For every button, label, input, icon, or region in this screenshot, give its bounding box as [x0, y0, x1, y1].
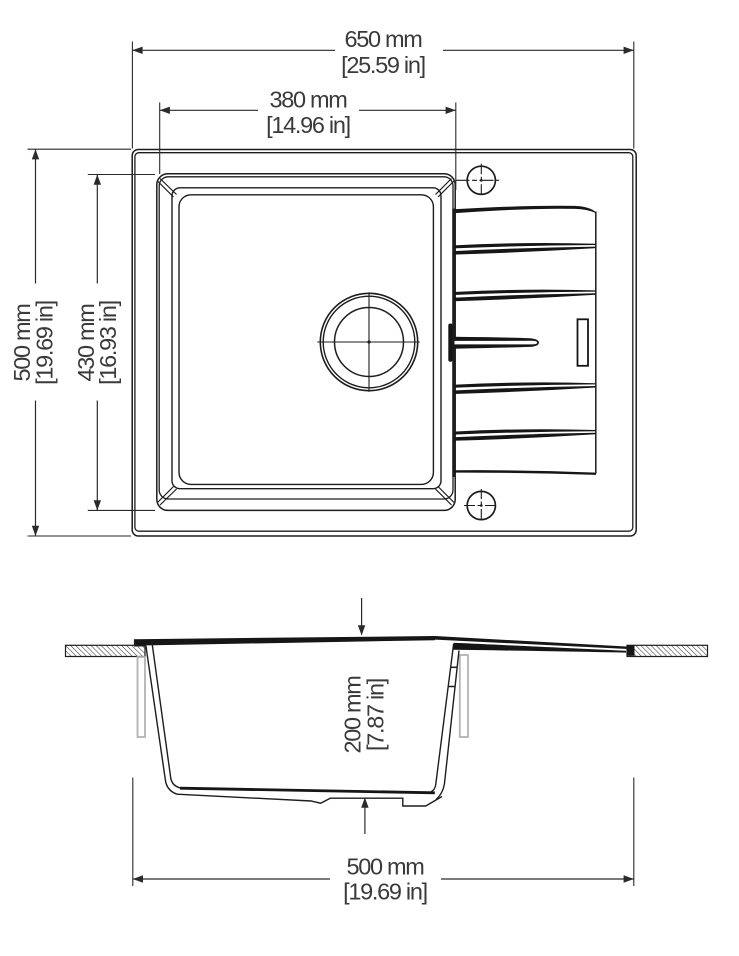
- svg-text:500 mm: 500 mm: [346, 854, 424, 880]
- svg-text:380 mm: 380 mm: [269, 87, 347, 113]
- svg-text:[19.69 in]: [19.69 in]: [343, 879, 427, 905]
- svg-text:[16.93 in]: [16.93 in]: [95, 301, 121, 385]
- svg-text:[19.69 in]: [19.69 in]: [32, 301, 58, 385]
- svg-text:[25.59 in]: [25.59 in]: [341, 52, 425, 78]
- svg-text:650 mm: 650 mm: [344, 26, 422, 52]
- svg-text:[7.87 in]: [7.87 in]: [363, 679, 389, 751]
- svg-text:[14.96 in]: [14.96 in]: [266, 112, 350, 138]
